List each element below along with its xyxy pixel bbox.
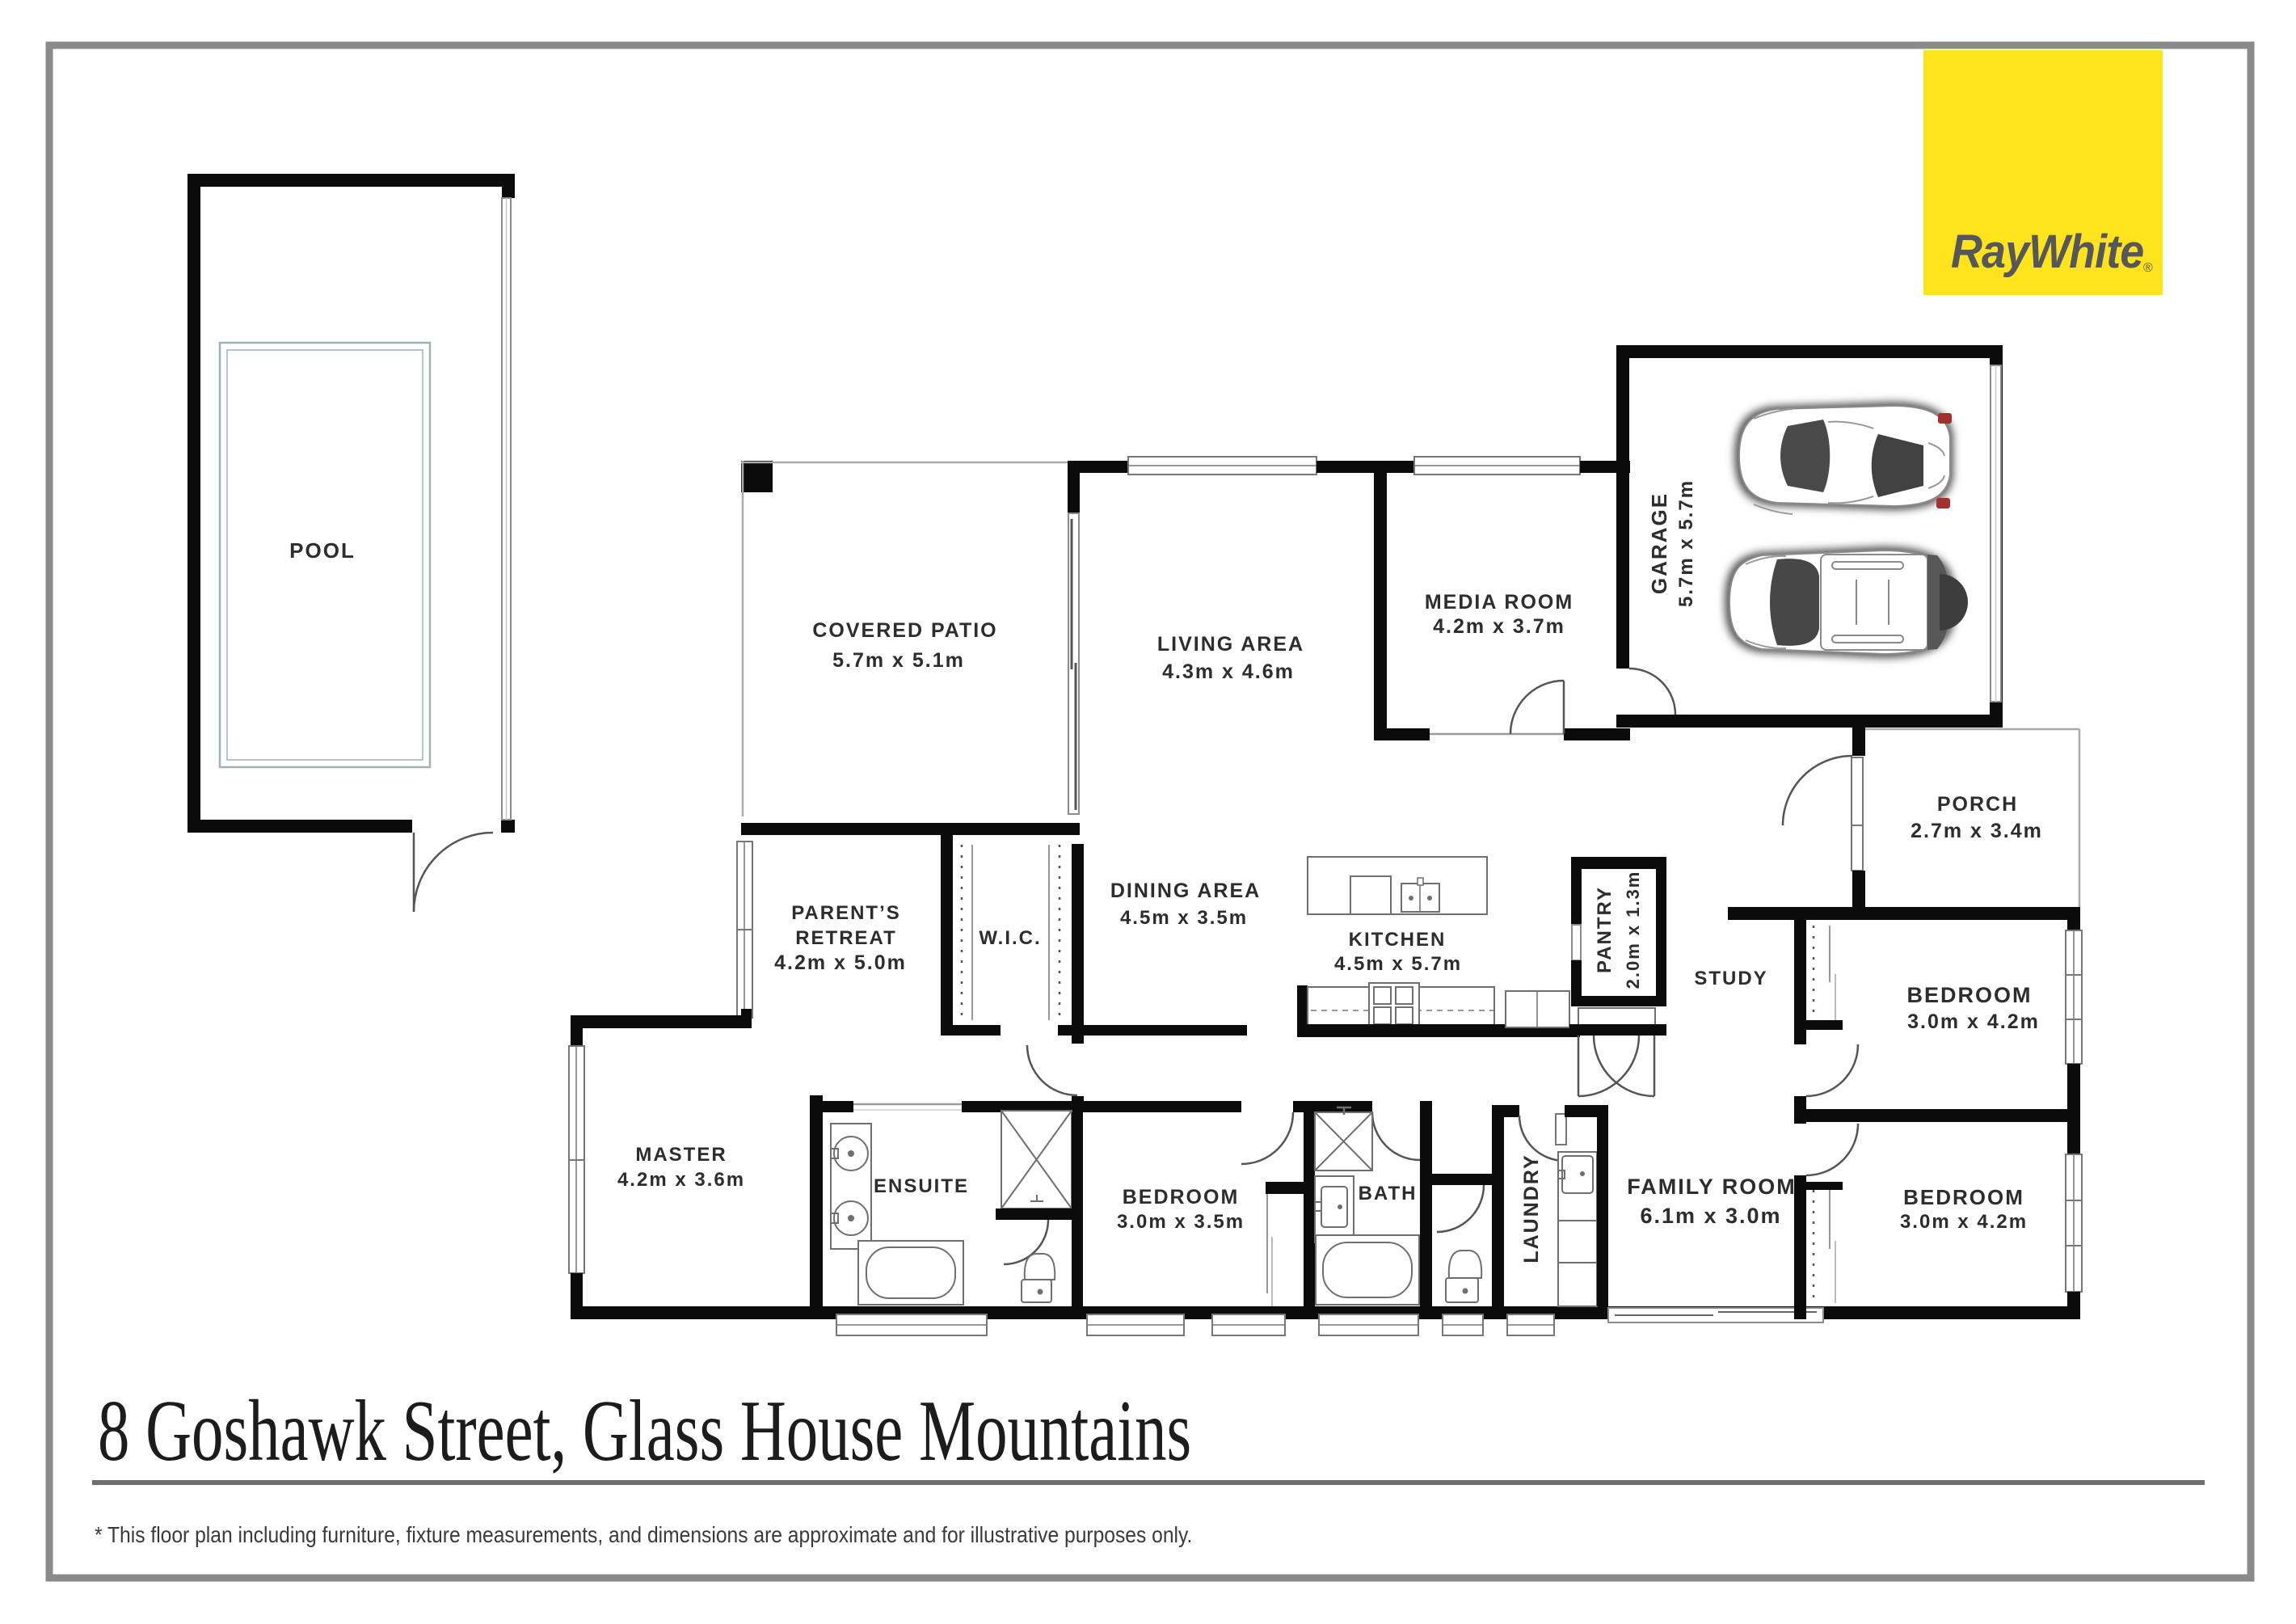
svg-text:®: ® — [2143, 261, 2153, 275]
svg-text:PORCH: PORCH — [1937, 793, 2018, 816]
svg-text:BEDROOM: BEDROOM — [1123, 1186, 1240, 1209]
svg-text:4.3m x 4.6m: 4.3m x 4.6m — [1162, 660, 1295, 683]
svg-text:LIVING AREA: LIVING AREA — [1157, 633, 1304, 656]
svg-text:GARAGE: GARAGE — [1647, 492, 1671, 594]
svg-text:POOL: POOL — [289, 538, 356, 563]
svg-text:4.5m x 5.7m: 4.5m x 5.7m — [1334, 953, 1462, 975]
svg-text:6.1m x 3.0m: 6.1m x 3.0m — [1640, 1204, 1781, 1228]
svg-text:8 Goshawk Street, Glass House: 8 Goshawk Street, Glass House Mountains — [98, 1383, 1191, 1479]
svg-text:PARENT’S: PARENT’S — [791, 902, 901, 924]
svg-text:ENSUITE: ENSUITE — [874, 1175, 969, 1197]
svg-text:2.7m x 3.4m: 2.7m x 3.4m — [1911, 820, 2043, 842]
svg-text:3.0m x 4.2m: 3.0m x 4.2m — [1900, 1211, 2028, 1233]
svg-text:DINING AREA: DINING AREA — [1110, 879, 1261, 902]
svg-text:* This floor plan including fu: * This floor plan including furniture, f… — [95, 1522, 1192, 1548]
svg-text:RETREAT: RETREAT — [795, 927, 897, 949]
svg-text:COVERED PATIO: COVERED PATIO — [812, 619, 997, 642]
svg-text:2.0m x 1.3m: 2.0m x 1.3m — [1623, 871, 1643, 989]
svg-text:BEDROOM: BEDROOM — [1907, 983, 2033, 1007]
svg-text:4.2m x 5.0m: 4.2m x 5.0m — [774, 951, 907, 974]
svg-text:PANTRY: PANTRY — [1594, 886, 1616, 973]
svg-text:4.2m x 3.6m: 4.2m x 3.6m — [617, 1169, 745, 1191]
svg-text:BATH: BATH — [1359, 1183, 1418, 1204]
svg-text:MEDIA ROOM: MEDIA ROOM — [1425, 591, 1573, 614]
svg-text:RayWhite: RayWhite — [1951, 225, 2143, 277]
svg-text:MASTER: MASTER — [635, 1144, 727, 1166]
svg-text:W.I.C.: W.I.C. — [979, 927, 1041, 949]
svg-text:KITCHEN: KITCHEN — [1349, 929, 1447, 951]
svg-text:4.5m x 3.5m: 4.5m x 3.5m — [1120, 907, 1248, 929]
svg-text:BEDROOM: BEDROOM — [1903, 1185, 2024, 1209]
svg-text:4.2m x 3.7m: 4.2m x 3.7m — [1433, 615, 1565, 638]
svg-text:3.0m x 4.2m: 3.0m x 4.2m — [1907, 1010, 2040, 1033]
svg-text:3.0m x 3.5m: 3.0m x 3.5m — [1117, 1211, 1245, 1233]
svg-text:STUDY: STUDY — [1694, 968, 1767, 989]
svg-text:5.7m x 5.7m: 5.7m x 5.7m — [1675, 479, 1697, 607]
svg-text:LAUNDRY: LAUNDRY — [1520, 1154, 1543, 1263]
svg-text:FAMILY ROOM: FAMILY ROOM — [1627, 1175, 1797, 1199]
svg-text:5.7m x 5.1m: 5.7m x 5.1m — [832, 649, 965, 672]
